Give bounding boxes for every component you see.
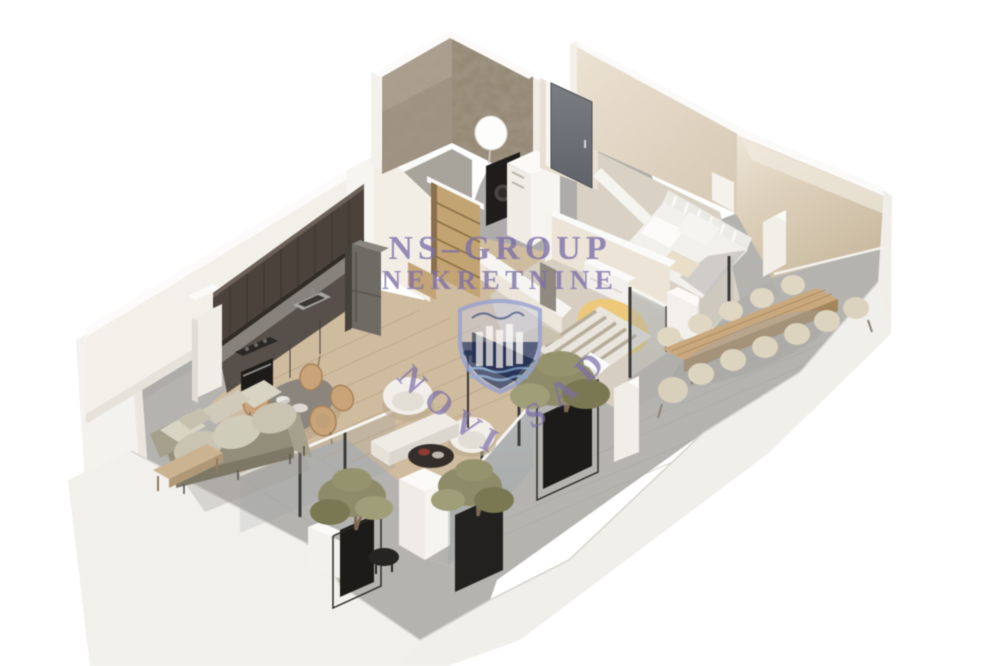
svg-text:NEKRETNINE: NEKRETNINE xyxy=(382,265,619,295)
svg-text:NS–GROUP: NS–GROUP xyxy=(388,230,611,267)
